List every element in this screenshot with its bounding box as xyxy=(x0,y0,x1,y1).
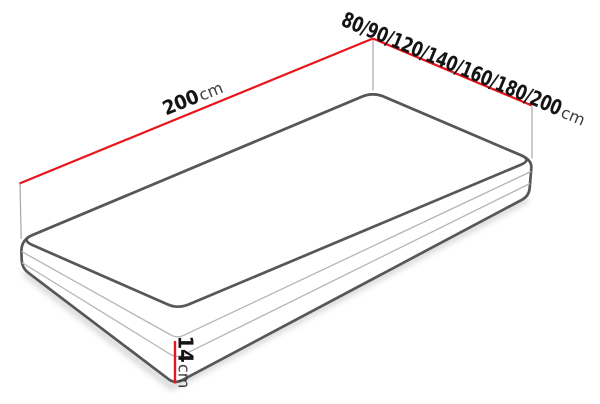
mattress-dimension-diagram: 200 cm 80/90/120/140/160/180/200 cm 14 c… xyxy=(0,0,600,404)
width-unit: cm xyxy=(558,103,588,130)
extension-line-left xyxy=(20,184,21,239)
height-label: 14 cm xyxy=(174,336,198,389)
length-value: 200 xyxy=(159,85,202,120)
diagram-canvas: 200 cm 80/90/120/140/160/180/200 cm 14 c… xyxy=(0,0,600,404)
height-unit: cm xyxy=(175,364,194,388)
height-value: 14 xyxy=(174,336,198,363)
